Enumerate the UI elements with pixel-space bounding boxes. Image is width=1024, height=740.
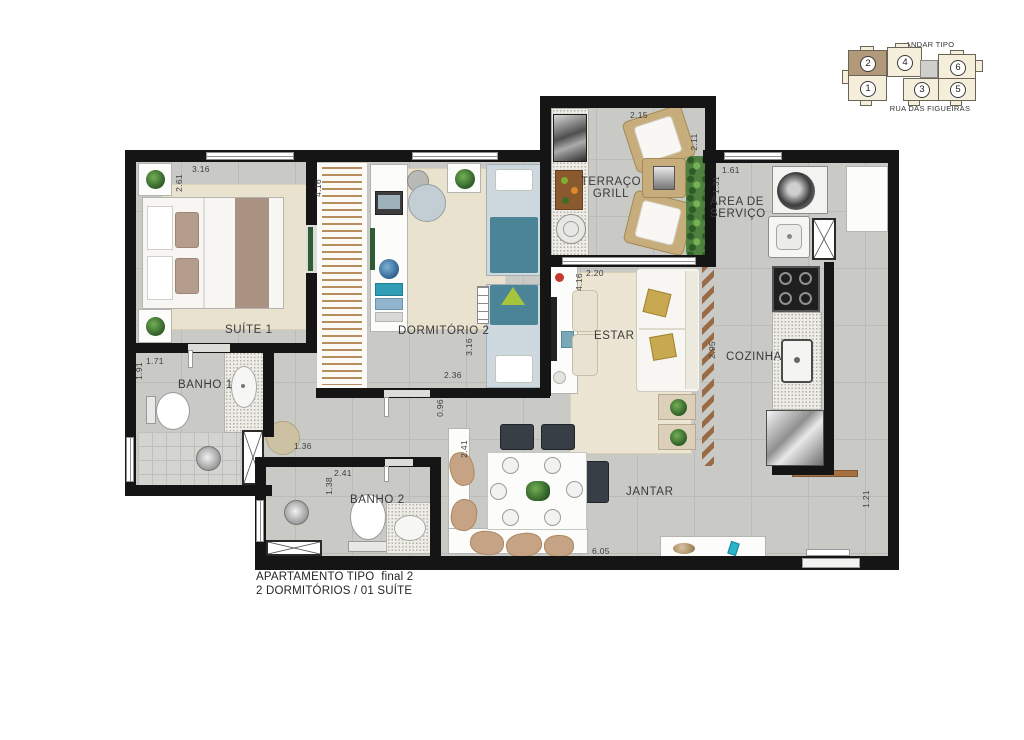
banho1-counter (224, 351, 264, 433)
banho2-window (256, 500, 264, 542)
terraco-sliding-door (562, 257, 696, 265)
dorm2-bed-2 (486, 284, 542, 388)
room-label-banho-1: BANHO 1 (178, 379, 233, 391)
duct-shaft-banho2 (266, 540, 322, 556)
dim-dorm2-depth: 3.16 (464, 332, 474, 362)
banho1-toilet-tank (146, 396, 156, 424)
laundry-tank (768, 216, 810, 258)
wall (255, 457, 441, 467)
suite-closet-door (308, 227, 313, 271)
dorm2-door-opening (384, 390, 430, 397)
dim-suite1-width: 3.16 (192, 164, 210, 174)
shower-window (126, 437, 134, 482)
dorm2-window (412, 152, 498, 160)
dim-dorm2-width: 2.36 (444, 370, 462, 380)
terraco-sink (556, 214, 586, 244)
dim-banho1-width: 1.71 (146, 356, 164, 366)
wall (540, 96, 716, 108)
dorm2-bed-1 (486, 164, 542, 276)
suite-window (206, 152, 294, 160)
plan-caption-line1: APARTAMENTO TIPO final 2 (256, 570, 413, 584)
refrigerator (766, 410, 824, 466)
room-label-estar: ESTAR (594, 330, 635, 342)
wall (316, 388, 550, 398)
banho2-door-leaf (384, 466, 389, 482)
key-plan-unit-3: 3 (903, 78, 940, 101)
room-label-cozinha: COZINHA (726, 351, 782, 363)
estar-side-table (658, 424, 696, 450)
dorm2-plant-box (447, 163, 481, 193)
suite-nightstand-bottom (138, 309, 172, 343)
wall (824, 262, 834, 474)
suite-nightstand-top (138, 163, 172, 196)
dining-table (487, 452, 587, 530)
key-plan: ANDAR TIPO 2 4 6 1 3 5 RUA DAS FIGUEIRAS (836, 36, 1016, 118)
banho2-counter (386, 502, 432, 554)
servico-window (724, 152, 782, 160)
exterior-mask (125, 496, 257, 572)
room-label-suite-1: SUÍTE 1 (225, 324, 273, 336)
key-plan-unit-1: 1 (848, 75, 887, 101)
washing-machine (772, 166, 828, 214)
dorm2-round-table (408, 184, 446, 222)
dim-cozinha-depth: 2.95 (707, 335, 717, 365)
wall (888, 150, 899, 570)
dim-estar-width: 2.20 (586, 268, 604, 278)
estar-side-table (658, 394, 696, 420)
dim-jantar-depth: 2.41 (459, 434, 469, 464)
estar-cozinha-divider (702, 266, 714, 466)
dorm2-door-leaf (384, 397, 389, 417)
dim-suite1-depth: 2.61 (174, 168, 184, 198)
dim-estar-depth: 4.16 (574, 267, 584, 297)
plan-caption-line2: 2 DORMITÓRIOS / 01 SUÍTE (256, 584, 412, 598)
entry-door-leaf (806, 549, 850, 556)
dining-chair (541, 424, 575, 450)
key-plan-unit-6: 6 (938, 54, 976, 80)
key-plan-unit-5: 5 (938, 78, 976, 101)
dorm2-bed-ladder (477, 286, 489, 324)
banho1-shower-head (196, 446, 221, 471)
dim-jantar-width: 6.05 (592, 546, 610, 556)
dim-hall-width: 0.96 (435, 393, 445, 423)
room-label-banho-2: BANHO 2 (350, 494, 405, 506)
key-plan-core (920, 60, 938, 78)
dim-servico-width: 1.61 (722, 165, 740, 175)
entry-door-opening (802, 558, 860, 568)
dorm2-green-door (370, 228, 375, 270)
shower-floor-banho1 (138, 432, 240, 485)
estar-sofa (636, 268, 700, 392)
banho2-toilet-tank (348, 541, 388, 552)
dim-banho1-depth: 1.91 (134, 356, 144, 386)
wall (540, 96, 551, 396)
wall (430, 457, 441, 567)
key-plan-street: RUA DAS FIGUEIRAS (860, 104, 1000, 113)
key-plan-unit-2: 2 (848, 50, 887, 77)
duct-shaft-servico (812, 218, 836, 260)
banho1-door-leaf (188, 350, 193, 368)
cooktop (772, 266, 820, 312)
dim-terraco-depth: 2.11 (689, 127, 699, 157)
grill (553, 114, 587, 162)
dim-entry-width: 1.21 (861, 484, 871, 514)
floor-plan-page: SUÍTE 1 BANHO 1 DORMITÓRIO 2 TERRAÇO GRI… (0, 0, 1024, 740)
key-plan-unit-4: 4 (887, 47, 922, 77)
dim-banho2-width: 2.41 (334, 468, 352, 478)
dim-servico-depth: 1.31 (711, 170, 721, 200)
dim-terraco-width: 2.15 (630, 110, 648, 120)
banho2-shower-head (284, 500, 309, 525)
dim-hall-nicho: 1.36 (294, 441, 312, 451)
room-label-dormitorio-2: DORMITÓRIO 2 (398, 325, 490, 337)
wall (772, 466, 834, 475)
wall (263, 353, 274, 437)
banho2-door-opening (385, 459, 413, 466)
bench-pillow (544, 535, 574, 557)
room-label-terraco-grill: TERRAÇO GRILL (570, 176, 652, 200)
servico-cabinet (846, 166, 888, 232)
banho1-toilet (156, 392, 190, 430)
dorm2-desk (370, 164, 408, 332)
dining-chair (500, 424, 534, 450)
room-label-jantar: JANTAR (626, 486, 673, 498)
suite-double-bed (142, 197, 284, 309)
dim-closet-length: 4.16 (313, 173, 323, 203)
banho1-door-opening (188, 344, 230, 352)
wall (125, 485, 272, 496)
dim-banho2-depth: 1.38 (324, 471, 334, 501)
suite-closet-wardrobe (316, 162, 368, 390)
